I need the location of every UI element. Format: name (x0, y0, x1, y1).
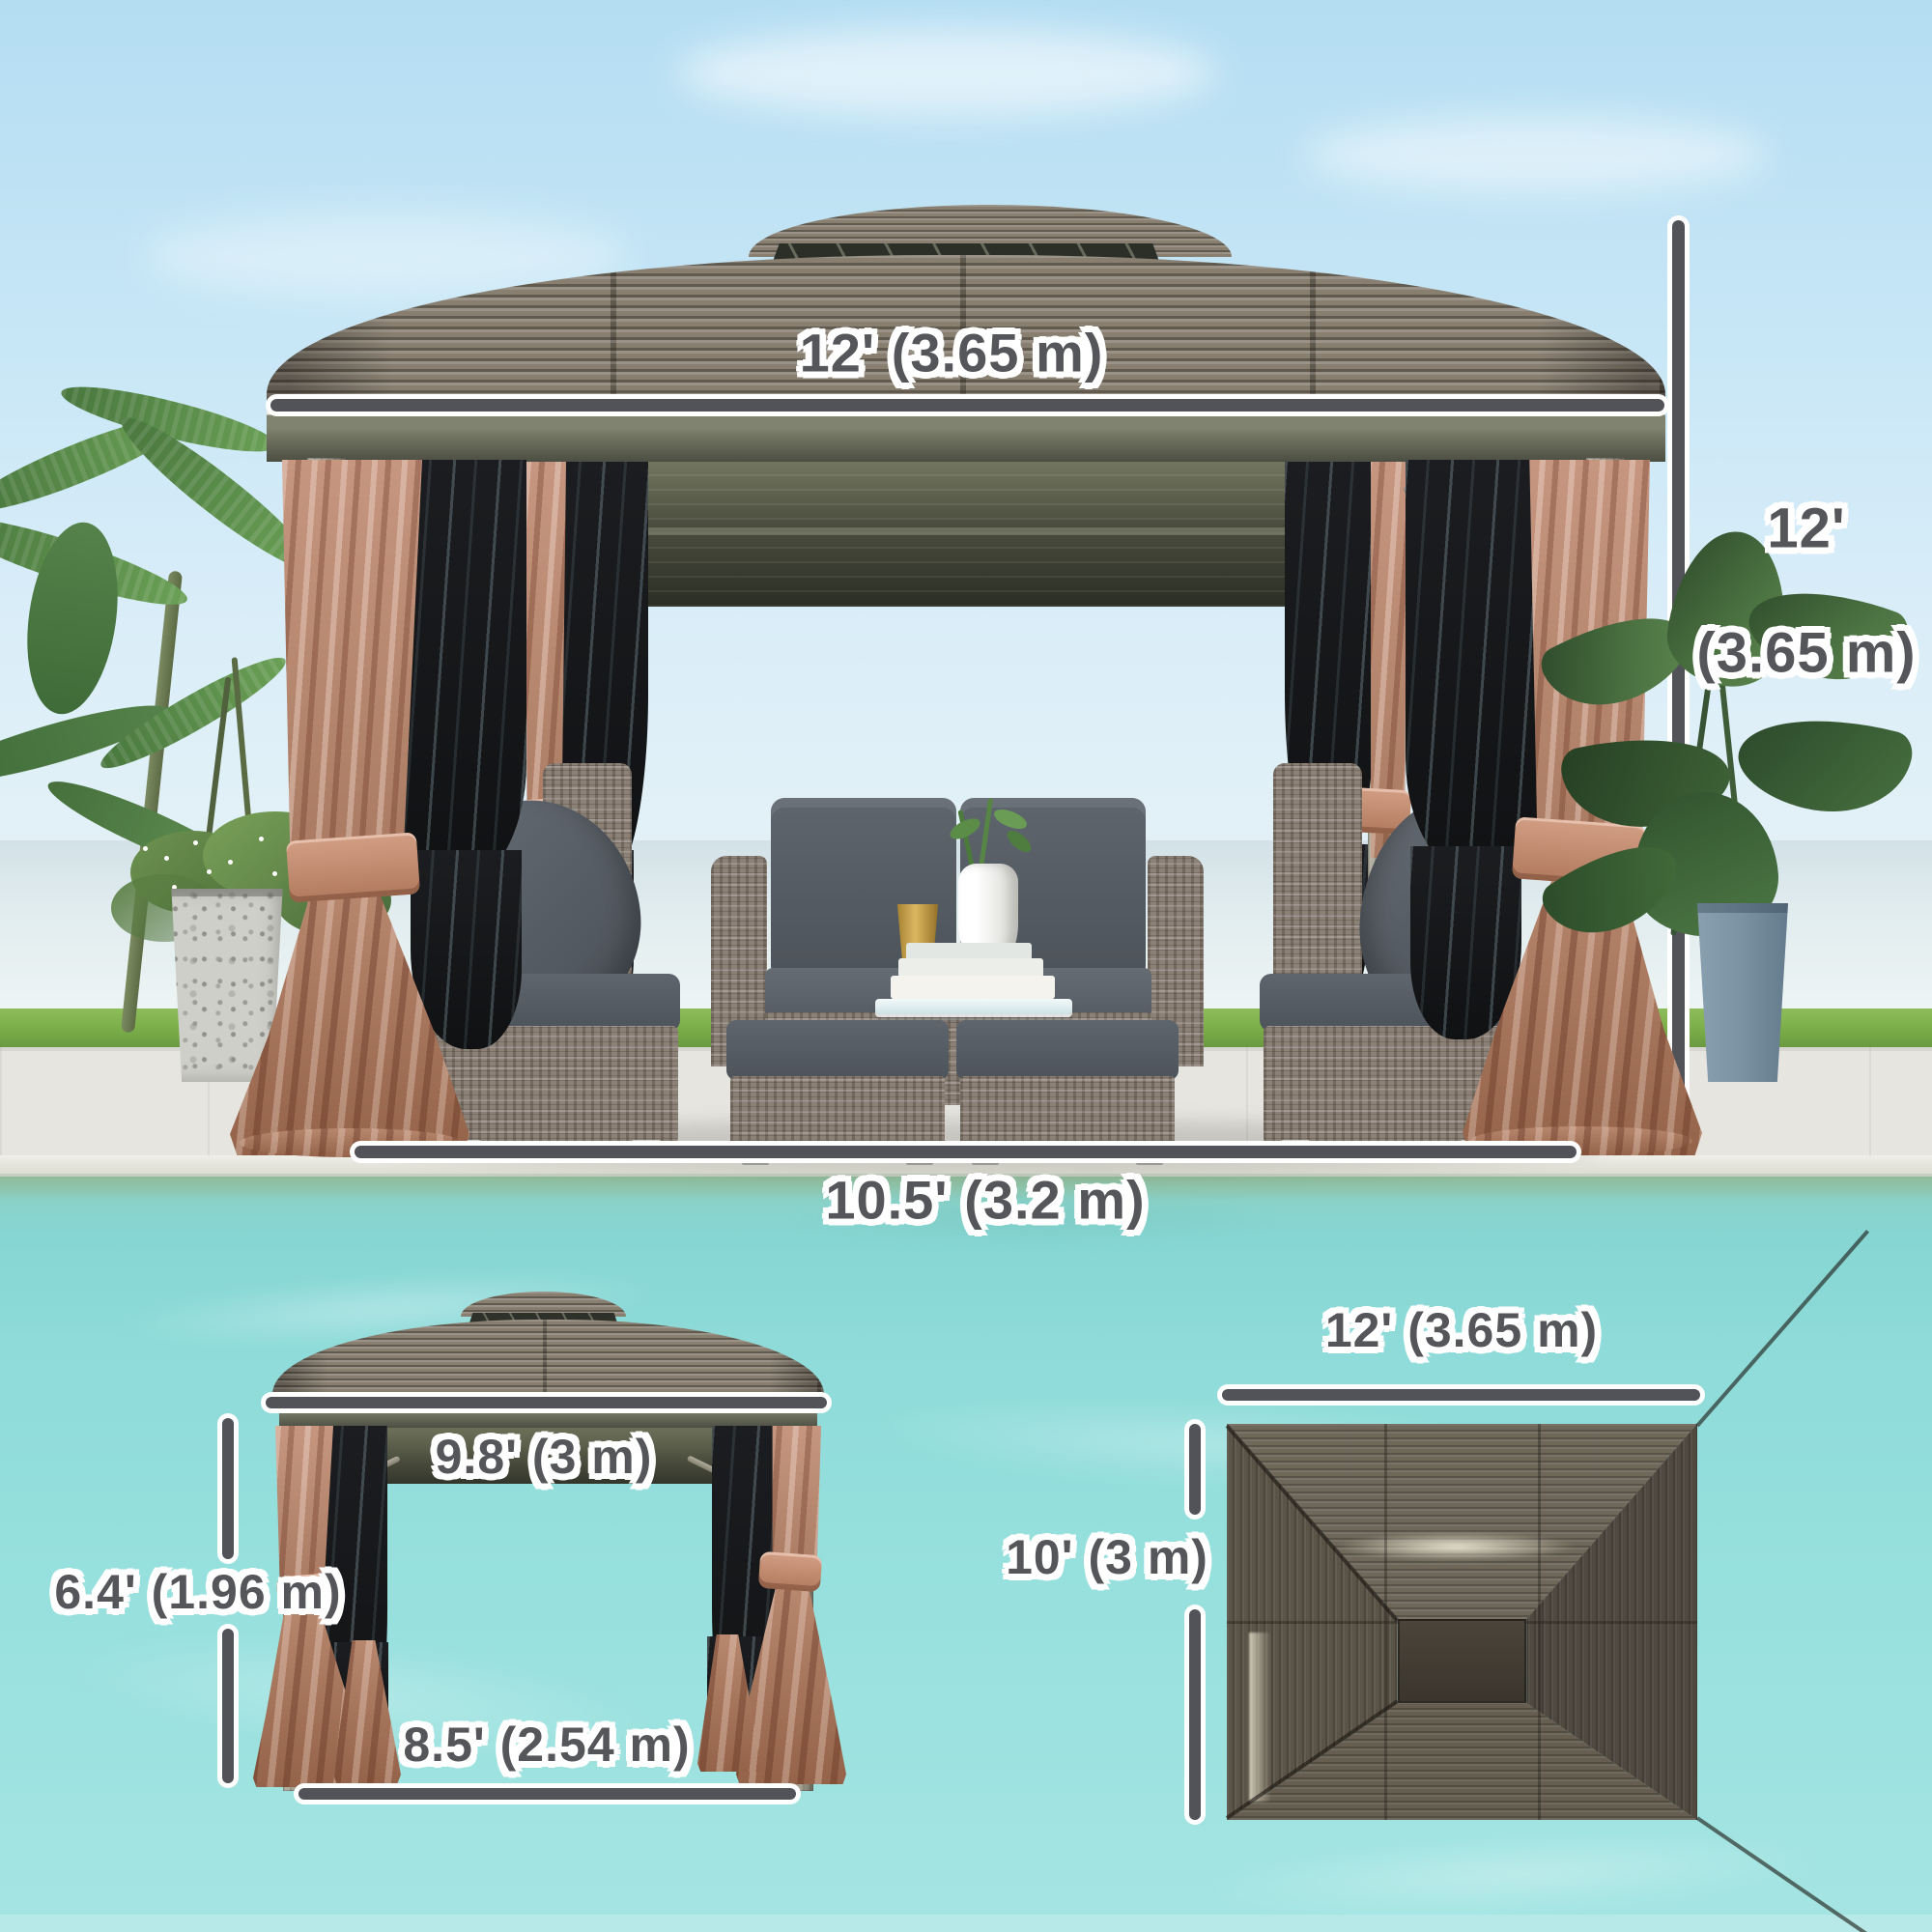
dim-label-height-line1: 12' (1686, 498, 1927, 561)
blue-planter (1689, 903, 1797, 1082)
gazebo-dimensions-infographic: 12' (3.65 m) 12' (3.65 m) 10.5' (3.2 m) … (0, 0, 1932, 1932)
ottoman-base (730, 1076, 945, 1155)
dim-line-side-height-upper (222, 1418, 234, 1559)
side-tieback-right (758, 1551, 822, 1592)
top-view-diagram (1227, 1424, 1697, 1820)
tieback-band-front-left (286, 832, 420, 902)
plant-sprig (979, 798, 993, 869)
dim-label-side-footprint: 8.5' (2.54 m) (403, 1718, 690, 1772)
roof-fascia (267, 410, 1665, 462)
dim-line-footprint-width (355, 1146, 1577, 1158)
roof-center-vent (1398, 1619, 1526, 1703)
dim-label-footprint-width: 10.5' (3.2 m) (825, 1171, 1145, 1232)
ottoman-base (960, 1076, 1175, 1155)
book (891, 976, 1055, 999)
ottoman-right (954, 1020, 1182, 1165)
ottoman-cushion (956, 1020, 1179, 1080)
ceiling-beam (541, 527, 1391, 535)
roof-panel-seam (1227, 1621, 1398, 1624)
ottoman-cushion (726, 1020, 949, 1080)
pool-far-edge (0, 1915, 1932, 1932)
dim-label-height-line2: (3.65 m) (1686, 622, 1927, 685)
curtain-front-left (282, 460, 422, 871)
dim-line-top-roof-width (1222, 1389, 1700, 1401)
dim-label-height: 12' (3.65 m) (1686, 529, 1927, 655)
coffee-table (860, 792, 1092, 1024)
sprig-leaf (1004, 827, 1035, 856)
book (898, 958, 1043, 978)
dim-label-side-roof-depth: 9.8' (3 m) (436, 1430, 653, 1484)
dim-line-roof-width (270, 399, 1664, 412)
plant-leaf (1730, 696, 1918, 830)
side-main-roof (272, 1320, 824, 1401)
glass-table-top (875, 999, 1072, 1014)
dim-line-side-roof-depth (266, 1397, 827, 1408)
dim-label-side-height: 6.4' (1.96 m) (54, 1565, 341, 1619)
dim-line-side-height-lower (222, 1629, 234, 1783)
dim-line-top-roof-depth-lower (1189, 1609, 1201, 1820)
sprig-leaf (991, 806, 1029, 833)
dim-label-top-roof-depth: 10' (3 m) (1006, 1530, 1208, 1584)
dim-line-top-roof-depth-upper (1189, 1424, 1201, 1515)
dim-label-roof-width: 12' (3.65 m) (800, 324, 1104, 384)
roof-panel-seam (1526, 1621, 1697, 1624)
ottoman-left (724, 1020, 952, 1165)
dim-label-top-roof-width: 12' (3.65 m) (1325, 1303, 1598, 1357)
dim-line-side-footprint (298, 1788, 796, 1800)
roof-skylight-glow-left (1249, 1633, 1270, 1802)
side-curtain-left (275, 1426, 333, 1588)
